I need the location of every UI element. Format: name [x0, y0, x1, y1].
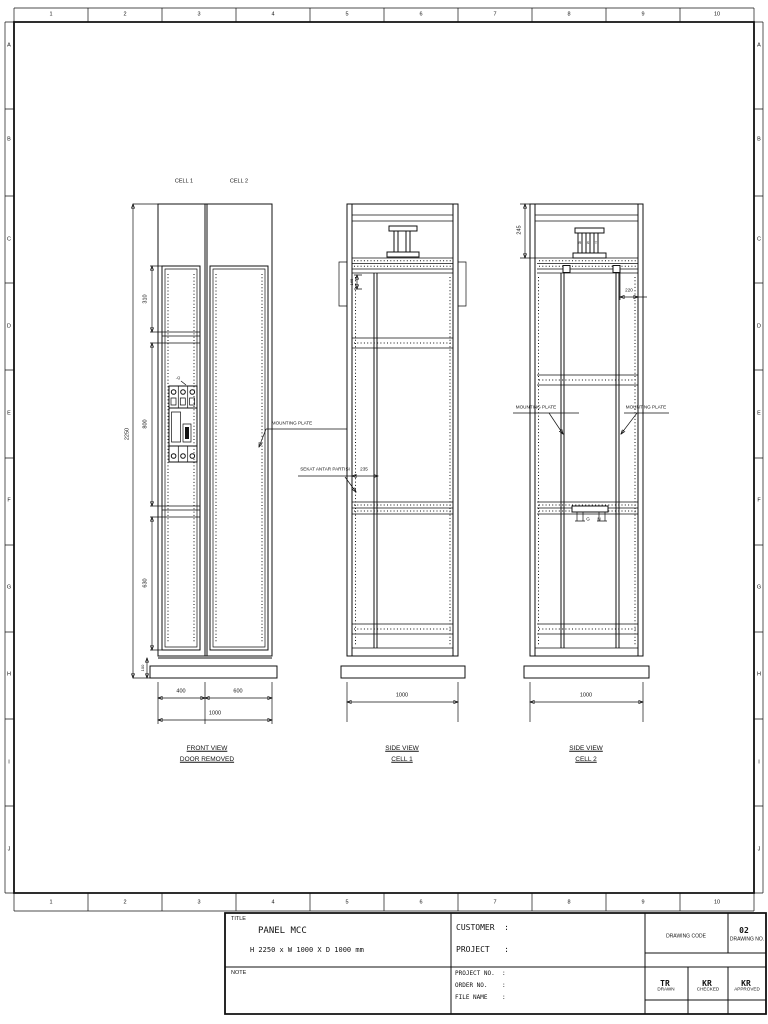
- grid-row-left-e: E: [7, 411, 11, 417]
- checked-value: KR: [702, 980, 712, 988]
- front-view-title: FRONT VIEW: [187, 746, 228, 753]
- dim-front-mid-section: 800: [143, 419, 149, 428]
- grid-row-left-c: C: [7, 237, 11, 243]
- grid-col-bot-3: 3: [197, 900, 200, 906]
- dim-side2-top: 245: [517, 225, 523, 234]
- grid-col-bot-8: 8: [567, 900, 570, 906]
- ground-bus-label: G: [586, 518, 590, 523]
- side2-title: SIDE VIEW: [569, 746, 603, 753]
- grid-row-left-f: F: [7, 498, 10, 504]
- grid-col-bot-7: 7: [493, 900, 496, 906]
- grid-row-right-j: J: [758, 847, 761, 853]
- grid-row-right-e: E: [757, 411, 761, 417]
- front-cell1-label: CELL 1: [175, 179, 193, 185]
- grid-col-top-9: 9: [641, 12, 644, 18]
- grid-col-top-10: 10: [714, 12, 720, 18]
- project-no-label: PROJECT NO. :: [455, 971, 506, 977]
- side2-subtitle: CELL 2: [575, 757, 596, 764]
- dim-side2-plate: 220: [625, 289, 633, 294]
- grid-row-right-b: B: [757, 137, 761, 143]
- grid-col-bot-1: 1: [49, 900, 52, 906]
- grid-row-right-i: I: [758, 760, 760, 766]
- grid-row-right-h: H: [757, 672, 761, 678]
- file-name-label: FILE NAME :: [455, 995, 506, 1001]
- grid-col-top-4: 4: [271, 12, 274, 18]
- grid-col-top-3: 3: [197, 12, 200, 18]
- grid-row-right-g: G: [757, 585, 761, 591]
- front-cell2-label: CELL 2: [230, 179, 248, 185]
- dim-front-width-1: 400: [176, 689, 185, 695]
- dim-front-height: 2250: [125, 428, 131, 440]
- grid-row-right-a: A: [757, 43, 761, 49]
- grid-col-top-6: 6: [419, 12, 422, 18]
- drawing-no-label: DRAWING NO.: [730, 938, 764, 943]
- dim-front-low-section: 630: [143, 578, 149, 587]
- busbar-phase-s: S: [587, 241, 590, 245]
- busbar-phase-t: T: [595, 241, 597, 245]
- side-view-1-linework: [298, 204, 466, 722]
- grid-row-left-b: B: [7, 137, 11, 143]
- title-block-title-label: TITLE: [231, 917, 246, 923]
- dim-front-width-total: 1000: [209, 711, 221, 717]
- approved-label: APPROVED: [734, 988, 760, 993]
- drawing-sheet: 1 2 3 4 5 6 7 8 9 10 1 2 3 4 5 6 7 8 9 1…: [0, 0, 768, 1024]
- breaker-tag: -Q: [176, 376, 180, 380]
- order-no-label: ORDER NO. :: [455, 983, 506, 989]
- grid-col-top-2: 2: [123, 12, 126, 18]
- neutral-bus-label: N: [597, 518, 600, 523]
- grid-col-bot-4: 4: [271, 900, 274, 906]
- customer-label: CUSTOMER :: [456, 924, 509, 932]
- grid-col-top-8: 8: [567, 12, 570, 18]
- grid-row-left-d: D: [7, 324, 11, 330]
- dim-front-top-section: 310: [143, 294, 149, 303]
- grid-col-bot-2: 2: [123, 900, 126, 906]
- dim-side1-width: 1000: [396, 693, 408, 699]
- dim-side1-rail: 165: [350, 279, 354, 286]
- grid-row-left-a: A: [7, 43, 11, 49]
- busbar-phase-r: R: [579, 241, 582, 245]
- checked-label: CHECKED: [697, 988, 719, 993]
- panel-title: PANEL MCC: [258, 927, 307, 936]
- dim-front-base: 100: [141, 665, 145, 672]
- grid-col-bot-5: 5: [345, 900, 348, 906]
- side2-mounting-plate-left-label: MOUNTING PLATE: [516, 406, 557, 411]
- front-view-subtitle: DOOR REMOVED: [180, 757, 234, 764]
- grid-col-top-7: 7: [493, 12, 496, 18]
- drawing-code-label: DRAWING CODE: [666, 935, 706, 940]
- sheet-frame: [5, 8, 763, 911]
- dim-side1-partition: 235: [360, 468, 368, 473]
- dim-side2-width: 1000: [580, 693, 592, 699]
- grid-row-right-d: D: [757, 324, 761, 330]
- grid-row-left-g: G: [7, 585, 11, 591]
- drawing-no-value: 02: [739, 927, 749, 935]
- partition-label: SEKAT ANTAR PARTISI: [300, 468, 350, 473]
- grid-row-right-f: F: [757, 498, 760, 504]
- note-label: NOTE: [231, 971, 246, 977]
- side1-subtitle: CELL 1: [391, 757, 412, 764]
- grid-col-bot-10: 10: [714, 900, 720, 906]
- front-view-linework: [133, 204, 347, 724]
- approved-value: KR: [741, 980, 751, 988]
- grid-row-left-i: I: [8, 760, 10, 766]
- grid-col-bot-9: 9: [641, 900, 644, 906]
- grid-col-bot-6: 6: [419, 900, 422, 906]
- dim-front-width-2: 600: [233, 689, 242, 695]
- side1-title: SIDE VIEW: [385, 746, 419, 753]
- grid-col-top-5: 5: [345, 12, 348, 18]
- grid-col-top-1: 1: [49, 12, 52, 18]
- side2-mounting-plate-right-label: MOUNTING PLATE: [626, 406, 667, 411]
- grid-row-left-j: J: [8, 847, 11, 853]
- drawn-value: TR: [660, 980, 670, 988]
- front-mounting-plate-label: MOUNTING PLATE: [272, 422, 313, 427]
- grid-row-right-c: C: [757, 237, 761, 243]
- drawn-label: DRAWN: [657, 988, 674, 993]
- drawing-linework: [0, 0, 768, 1024]
- panel-size: H 2250 x W 1000 X D 1000 mm: [250, 947, 364, 954]
- project-label: PROJECT :: [456, 946, 509, 954]
- grid-row-left-h: H: [7, 672, 11, 678]
- side-view-2-linework: [513, 204, 669, 722]
